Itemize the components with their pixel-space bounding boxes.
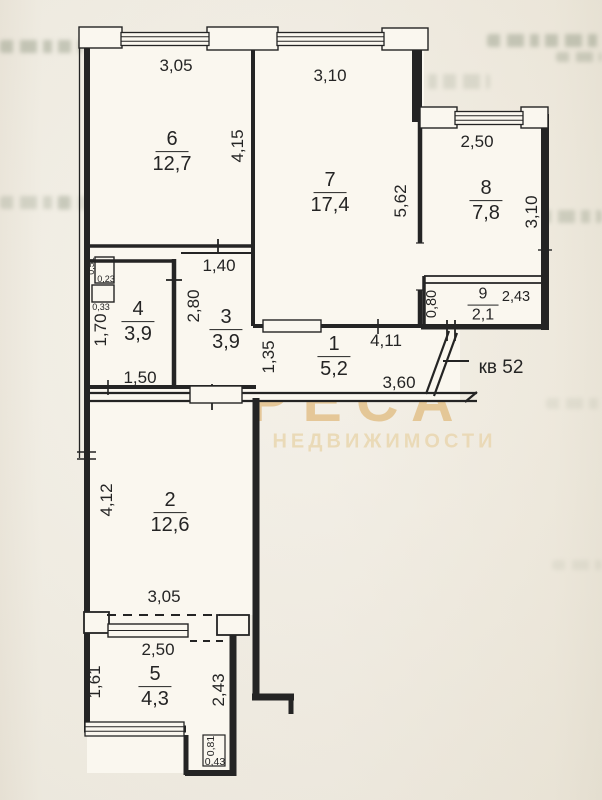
dim-room5-left: 1,61 — [85, 665, 105, 698]
room4-label: 4 3,9 — [121, 298, 154, 346]
room8-number: 8 — [469, 177, 502, 201]
dim-room4-depth: 1,70 — [91, 313, 111, 346]
dim-hall-top: 4,11 — [370, 331, 402, 351]
dim-vent-shaft-width: 0,23 — [97, 274, 115, 284]
room2-area: 12,6 — [151, 514, 190, 537]
room6-label: 6 12,7 — [153, 128, 192, 176]
dim-room5-width: 2,50 — [141, 640, 174, 660]
dim-step-width: 0,43 — [205, 756, 225, 768]
dim-room3-width: 1,40 — [202, 256, 235, 276]
dim-room9-height: 0,80 — [424, 290, 440, 318]
room7-label: 7 17,4 — [311, 169, 350, 217]
room2-number: 2 — [153, 489, 186, 513]
room7-area: 17,4 — [311, 194, 350, 217]
room9-label: 9 2,1 — [468, 286, 499, 325]
dim-room6-depth: 4,15 — [228, 129, 248, 162]
room8-label: 8 7,8 — [469, 177, 502, 225]
room5-area: 4,3 — [141, 688, 169, 711]
apartment-number-label: кв 52 — [479, 357, 524, 379]
dim-room8-width: 2,50 — [460, 132, 493, 152]
room7-number: 7 — [313, 169, 346, 193]
dim-hall-left: 1,35 — [259, 340, 279, 373]
dim-room4-width: 1,50 — [123, 368, 156, 388]
room4-number: 4 — [121, 298, 154, 322]
dim-vent-shaft-depth: 0,51 — [86, 257, 96, 275]
room5-label: 5 4,3 — [138, 663, 171, 711]
dim-room7-width: 3,10 — [313, 66, 346, 86]
plan-labels: 6 12,7 7 17,4 8 7,8 9 2,1 4 3,9 3 3,9 1 … — [0, 0, 602, 800]
room6-number: 6 — [155, 128, 188, 152]
dim-room6-width: 3,05 — [159, 56, 192, 76]
dim-room9-width: 2,43 — [502, 289, 530, 305]
room5-number: 5 — [138, 663, 171, 687]
dim-step-depth: 0,81 — [205, 736, 217, 756]
dim-vent-shaft2-width: 0,33 — [92, 302, 110, 312]
dim-room7-depth: 5,62 — [391, 184, 411, 217]
room6-area: 12,7 — [153, 153, 192, 176]
room1-area: 5,2 — [320, 358, 348, 381]
room9-area: 2,1 — [472, 306, 494, 325]
room1-label: 1 5,2 — [317, 333, 350, 381]
dim-room2-width: 3,05 — [147, 587, 180, 607]
room3-area: 3,9 — [212, 331, 240, 354]
dim-room2-depth: 4,12 — [97, 483, 117, 516]
scanned-floor-plan-page: АДРЕСА АГЕНТСТВО НЕДВИЖИМОСТИ — [0, 0, 602, 800]
room8-area: 7,8 — [472, 202, 500, 225]
room3-number: 3 — [209, 306, 242, 330]
dim-room8-depth: 3,10 — [522, 195, 542, 228]
room2-label: 2 12,6 — [151, 489, 190, 537]
dim-hall-bottom: 3,60 — [382, 373, 415, 393]
room1-number: 1 — [317, 333, 350, 357]
dim-room3-depth: 2,80 — [184, 289, 204, 322]
room9-number: 9 — [468, 286, 499, 306]
room4-area: 3,9 — [124, 323, 152, 346]
dim-room5-right: 2,43 — [209, 673, 229, 706]
room3-label: 3 3,9 — [209, 306, 242, 354]
